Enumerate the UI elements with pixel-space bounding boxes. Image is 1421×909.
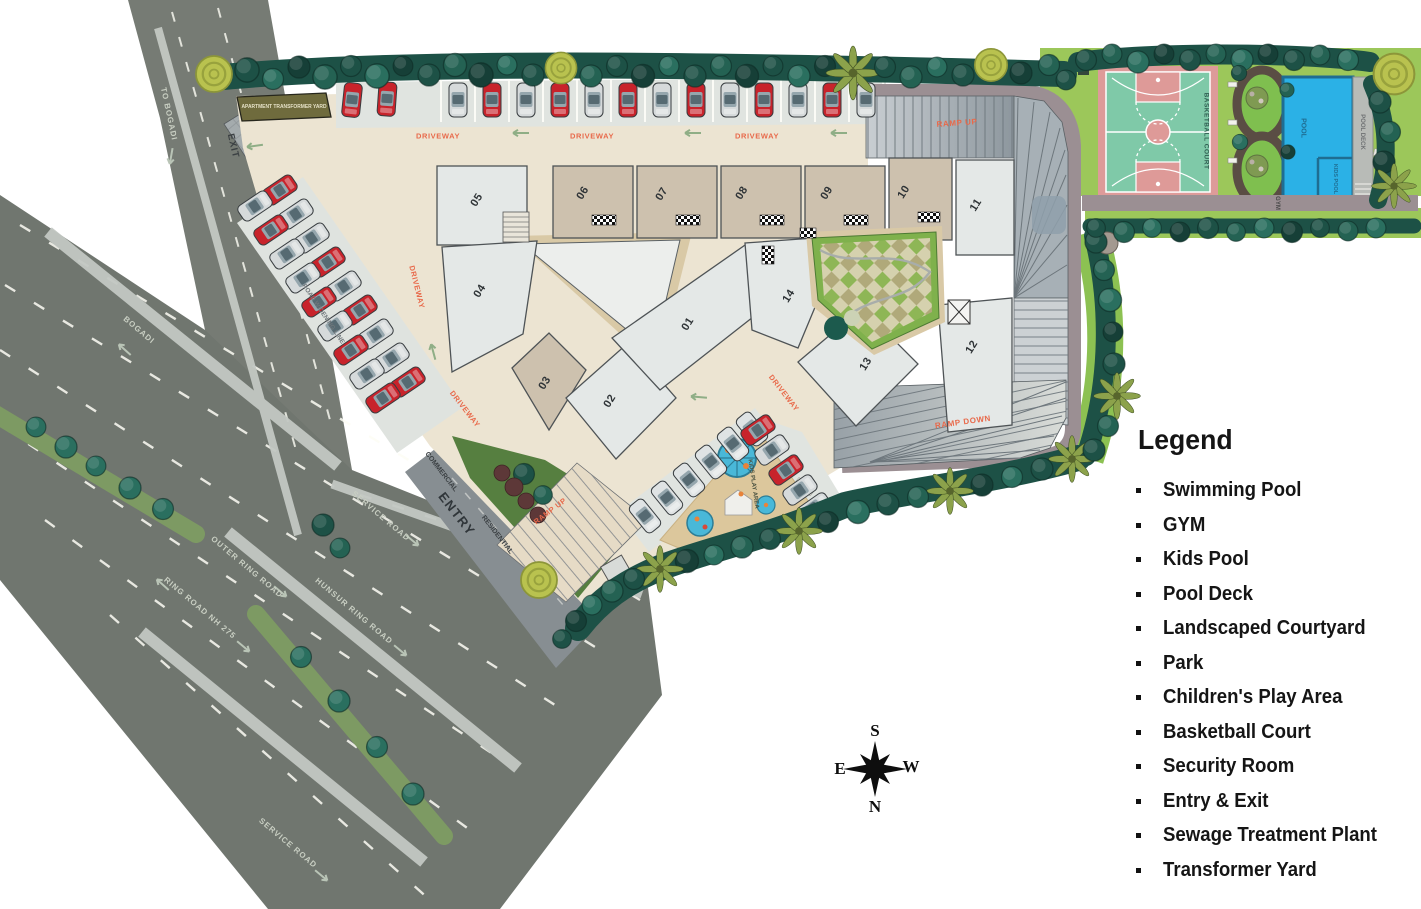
legend-item: Pool Deck	[1128, 584, 1421, 605]
apartment-transformer-yard-label: APARTMENT TRANSFORMER YARD	[241, 104, 326, 110]
legend-item-label: Swimming Pool	[1163, 480, 1301, 501]
legend-item: Sewage Treatment Plant	[1128, 825, 1421, 846]
legend-item: Children's Play Area	[1128, 687, 1421, 708]
building-block-08	[721, 166, 801, 238]
legend-item-label: Landscaped Courtyard	[1163, 618, 1366, 639]
legend-item-label: Kids Pool	[1163, 549, 1249, 570]
site-master-plan: TO BOGADI BOGADI OUTER RING ROAD RING RO…	[0, 0, 1421, 909]
legend-bullet	[1136, 488, 1141, 493]
legend-item-label: Entry & Exit	[1163, 791, 1268, 812]
legend-bullet	[1136, 730, 1141, 735]
landscaped-courtyard-area	[806, 226, 945, 355]
legend-bullet	[1136, 626, 1141, 631]
legend-bullet	[1136, 523, 1141, 528]
driveway-label: DRIVEWAY	[570, 132, 614, 141]
legend-bullet	[1136, 661, 1141, 666]
legend-item: Landscaped Courtyard	[1128, 618, 1421, 639]
legend-item-label: Park	[1163, 653, 1203, 674]
legend-item: GYM	[1128, 515, 1421, 536]
compass-east: E	[834, 759, 845, 779]
legend-item-label: Sewage Treatment Plant	[1163, 825, 1377, 846]
legend-item: Park	[1128, 653, 1421, 674]
legend-item: Swimming Pool	[1128, 480, 1421, 501]
gym-label: GYM	[1274, 196, 1280, 210]
driveway-label: DRIVEWAY	[735, 132, 779, 141]
legend-item: Kids Pool	[1128, 549, 1421, 570]
legend-item-label: Pool Deck	[1163, 584, 1253, 605]
legend-item-label: Basketball Court	[1163, 722, 1311, 743]
legend-title: Legend	[1138, 424, 1233, 456]
legend-item: Entry & Exit	[1128, 791, 1421, 812]
building-block-11	[956, 160, 1014, 255]
pool-deck-label: POOL DECK	[1359, 114, 1365, 150]
legend-bullet	[1136, 764, 1141, 769]
building-block-06	[553, 166, 633, 238]
legend-item: Basketball Court	[1128, 722, 1421, 743]
legend-item-label: Children's Play Area	[1163, 687, 1342, 708]
legend-item-label: GYM	[1163, 515, 1205, 536]
legend-item: Transformer Yard	[1128, 860, 1421, 881]
legend-bullet	[1136, 799, 1141, 804]
legend-bullet	[1136, 868, 1141, 873]
legend-bullet	[1136, 592, 1141, 597]
legend-bullet	[1136, 557, 1141, 562]
legend-bullet	[1136, 833, 1141, 838]
legend-item-label: Transformer Yard	[1163, 860, 1317, 881]
driveway-label: DRIVEWAY	[416, 132, 460, 141]
compass-west: W	[903, 757, 920, 777]
kids-pool-label: KIDS POOL	[1332, 164, 1338, 194]
legend: Legend Swimming Pool GYM Kids Pool Pool …	[1128, 424, 1421, 894]
building-block-07	[637, 166, 717, 238]
legend-item: Security Room	[1128, 756, 1421, 777]
compass-north: N	[869, 797, 881, 817]
building-block-09	[805, 166, 885, 238]
legend-item-label: Security Room	[1163, 756, 1294, 777]
legend-bullet	[1136, 695, 1141, 700]
compass-south: S	[870, 721, 879, 741]
pool-label: POOL	[1300, 118, 1307, 138]
compass-rose-icon	[843, 741, 907, 797]
basketball-court-label: BASKETBALL COURT	[1203, 93, 1210, 170]
